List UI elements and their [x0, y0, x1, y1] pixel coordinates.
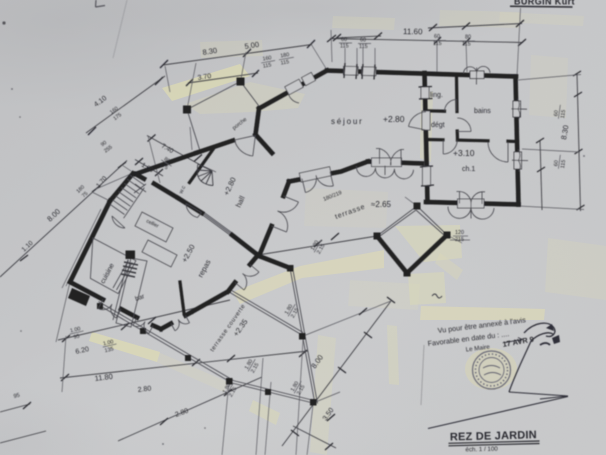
svg-text:BURGIN Kurt: BURGIN Kurt: [514, 0, 575, 7]
svg-text:≈2.65: ≈2.65: [371, 200, 392, 209]
svg-text:115: 115: [359, 44, 368, 50]
svg-text:éch. 1 / 100: éch. 1 / 100: [465, 446, 498, 454]
svg-text:120: 120: [455, 230, 464, 236]
svg-text:60: 60: [341, 37, 347, 43]
svg-text:215: 215: [455, 237, 464, 243]
svg-text:115: 115: [433, 41, 442, 47]
svg-text:80: 80: [465, 35, 471, 41]
svg-text:dégt: dégt: [431, 122, 445, 129]
svg-text:bains: bains: [474, 108, 491, 115]
svg-text:séjour: séjour: [331, 117, 364, 126]
svg-text:+2.80: +2.80: [383, 114, 405, 124]
svg-text:115: 115: [462, 42, 471, 48]
svg-text:60: 60: [360, 38, 366, 44]
svg-text:+3.10: +3.10: [453, 148, 475, 158]
svg-text:ling.: ling.: [430, 92, 443, 99]
svg-text:ch.1: ch.1: [462, 166, 475, 173]
svg-text:115: 115: [560, 109, 567, 118]
svg-text:115: 115: [340, 44, 349, 50]
svg-text:11.60: 11.60: [403, 27, 423, 36]
svg-text:115: 115: [560, 159, 567, 168]
svg-text:60: 60: [434, 34, 440, 40]
